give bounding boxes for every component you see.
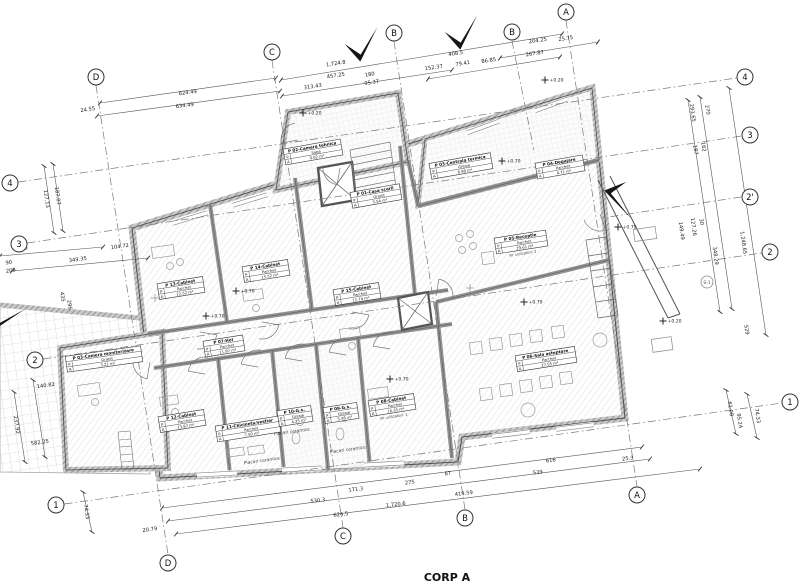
dimension-line [281,34,562,80]
dimension-text: 127.13 [42,189,50,208]
grid-bubble-D: D [160,555,176,571]
dimension-text: 95.37 [364,79,380,87]
dimension-line [176,469,700,534]
grid-bubble-3: 3 [742,127,758,143]
elevation-value: +0.79 [529,300,543,306]
dimension-text: 104.72 [110,243,129,251]
floor-plan-sheet: 624.49634.4924.551,724.8457.25313.431809… [0,0,800,588]
elevation-value: +0.70 [395,377,409,383]
dimension-line [729,88,766,335]
dimension-text: 1,724.8 [326,59,347,68]
dimension-text: 24.55 [80,106,96,114]
dimension-text: 20.79 [142,526,158,534]
grid-bubble-label: 4 [742,73,747,83]
elevation-value: +0.70 [507,159,521,165]
dimension-text: 539 [533,469,544,476]
section-marker: S-1 [701,276,713,288]
dimension-text: 348.29 [711,246,719,265]
canopy-line [610,176,680,314]
porch-step [633,227,656,242]
grid-bubble-A: A [558,4,574,20]
dimension-text: 95.24 [735,413,743,429]
elevation-value: +0.20 [550,78,564,84]
dimension-text: 30 [698,218,705,225]
dimension-text: 74.33 [753,408,761,424]
elevation-value: +0.70 [241,289,255,295]
elevation-value: +0.79 [623,225,637,231]
dimension-text: 25.75 [558,35,574,43]
dimension-text: 180 [364,71,375,78]
grid-bubble-label: 2 [767,248,772,258]
dimension-text: 208 [6,267,17,274]
grid-bubble-label: 3 [16,240,21,250]
grid-bubble-label: 1 [787,398,792,408]
dimension-text: 187 [691,145,698,156]
elevation-mark: +0.20 [542,77,564,84]
grid-bubble-3: 3 [11,236,27,252]
elevation-mark: +0.79 [615,224,637,231]
grid-bubble-2p: 2' [742,189,758,205]
grid-bubble-label: A [563,8,569,18]
elevation-value: +0.20 [308,111,322,117]
dimension-text: 270 [703,105,710,116]
grid-bubble-label: 4 [7,179,12,189]
dimension-text: 624.5 [333,511,348,519]
sheet-title: CORP A [424,571,471,584]
grid-bubble-label: C [340,532,346,542]
dimension-text: 152.37 [424,64,443,73]
dimension-text: 127.26 [689,217,697,236]
grid-bubble-D: D [88,69,104,85]
dimension-text: 171.3 [348,486,363,494]
dimension-text: 149.49 [677,221,685,240]
dimension-text: 275 [405,479,416,486]
dimension-text: 349.35 [68,256,87,264]
dimension-text: 267.87 [525,50,544,59]
dimension-text: 296 [65,300,72,311]
dimension-text: 204.25 [528,37,547,46]
elevation-value: +0.70 [211,314,225,320]
north-arrow-icon [443,15,480,51]
dimension-text: 61.08 [726,401,734,417]
grid-axis-line [602,197,741,218]
dimension-text: 457.25 [326,72,345,81]
grid-bubble-1: 1 [782,394,798,410]
grid-bubble-B: B [457,510,473,526]
section-marker-label: S-1 [703,280,710,286]
dimension-text: 634.49 [175,102,194,110]
dimension-text: 435 [58,292,65,303]
grid-bubble-label: D [93,73,100,83]
dimension-text: 187.07 [53,186,61,205]
porch-step [651,337,673,353]
elevation-cross-icon [542,77,549,84]
grid-bubble-label: B [509,28,515,38]
grid-bubble-C: C [335,528,351,544]
grid-bubble-B: B [386,25,402,41]
grid-bubble-label: B [391,29,397,39]
grid-bubble-label: D [165,559,172,569]
elevation-mark: +0.20 [660,318,682,325]
elevation-value: +0.20 [668,319,682,325]
dimension-text: 162 [699,142,706,153]
dimension-text: 624.49 [178,89,197,97]
elevation-cross-icon [660,318,667,325]
grid-bubble-label: 2' [746,193,754,203]
dimension-text: 86.85 [481,57,497,65]
dimension-text: 79.41 [455,60,471,68]
grid-bubble-label: 2 [32,356,37,366]
dimension-text: 419.59 [455,490,474,498]
grid-bubble-label: 3 [747,131,752,141]
grid-bubble-2: 2 [762,244,778,260]
grid-bubble-2: 2 [27,352,43,368]
grid-bubble-C: C [264,44,280,60]
dimension-text: 293.65 [688,103,696,122]
grid-bubble-1: 1 [48,497,64,513]
grid-bubble-label: B [462,514,468,524]
grid-bubble-B: B [504,24,520,40]
grid-bubble-label: C [269,48,275,58]
dimension-text: 616 [546,457,557,464]
dimension-text: 90 [5,260,12,267]
dimension-line [500,42,598,58]
dimension-text: 408.5 [448,50,464,58]
dimension-text: 529 [742,325,749,336]
dimension-text: 1,248.65 [738,231,747,255]
grid-bubble-4: 4 [737,69,753,85]
canopy-line [668,314,680,318]
floor-plan-svg: 624.49634.4924.551,724.8457.25313.431809… [0,0,800,588]
grid-bubble-A: A [629,487,645,503]
dimension-text: 530.3 [310,497,325,505]
dimension-text: 74.33 [82,504,90,520]
dimension-text: 87 [444,471,451,478]
grid-bubble-label: A [634,491,640,501]
north-arrow-icon [343,27,380,63]
grid-bubble-label: 1 [53,501,58,511]
dimension-text: 1,720.6 [386,501,406,509]
grid-bubble-4: 4 [2,175,18,191]
